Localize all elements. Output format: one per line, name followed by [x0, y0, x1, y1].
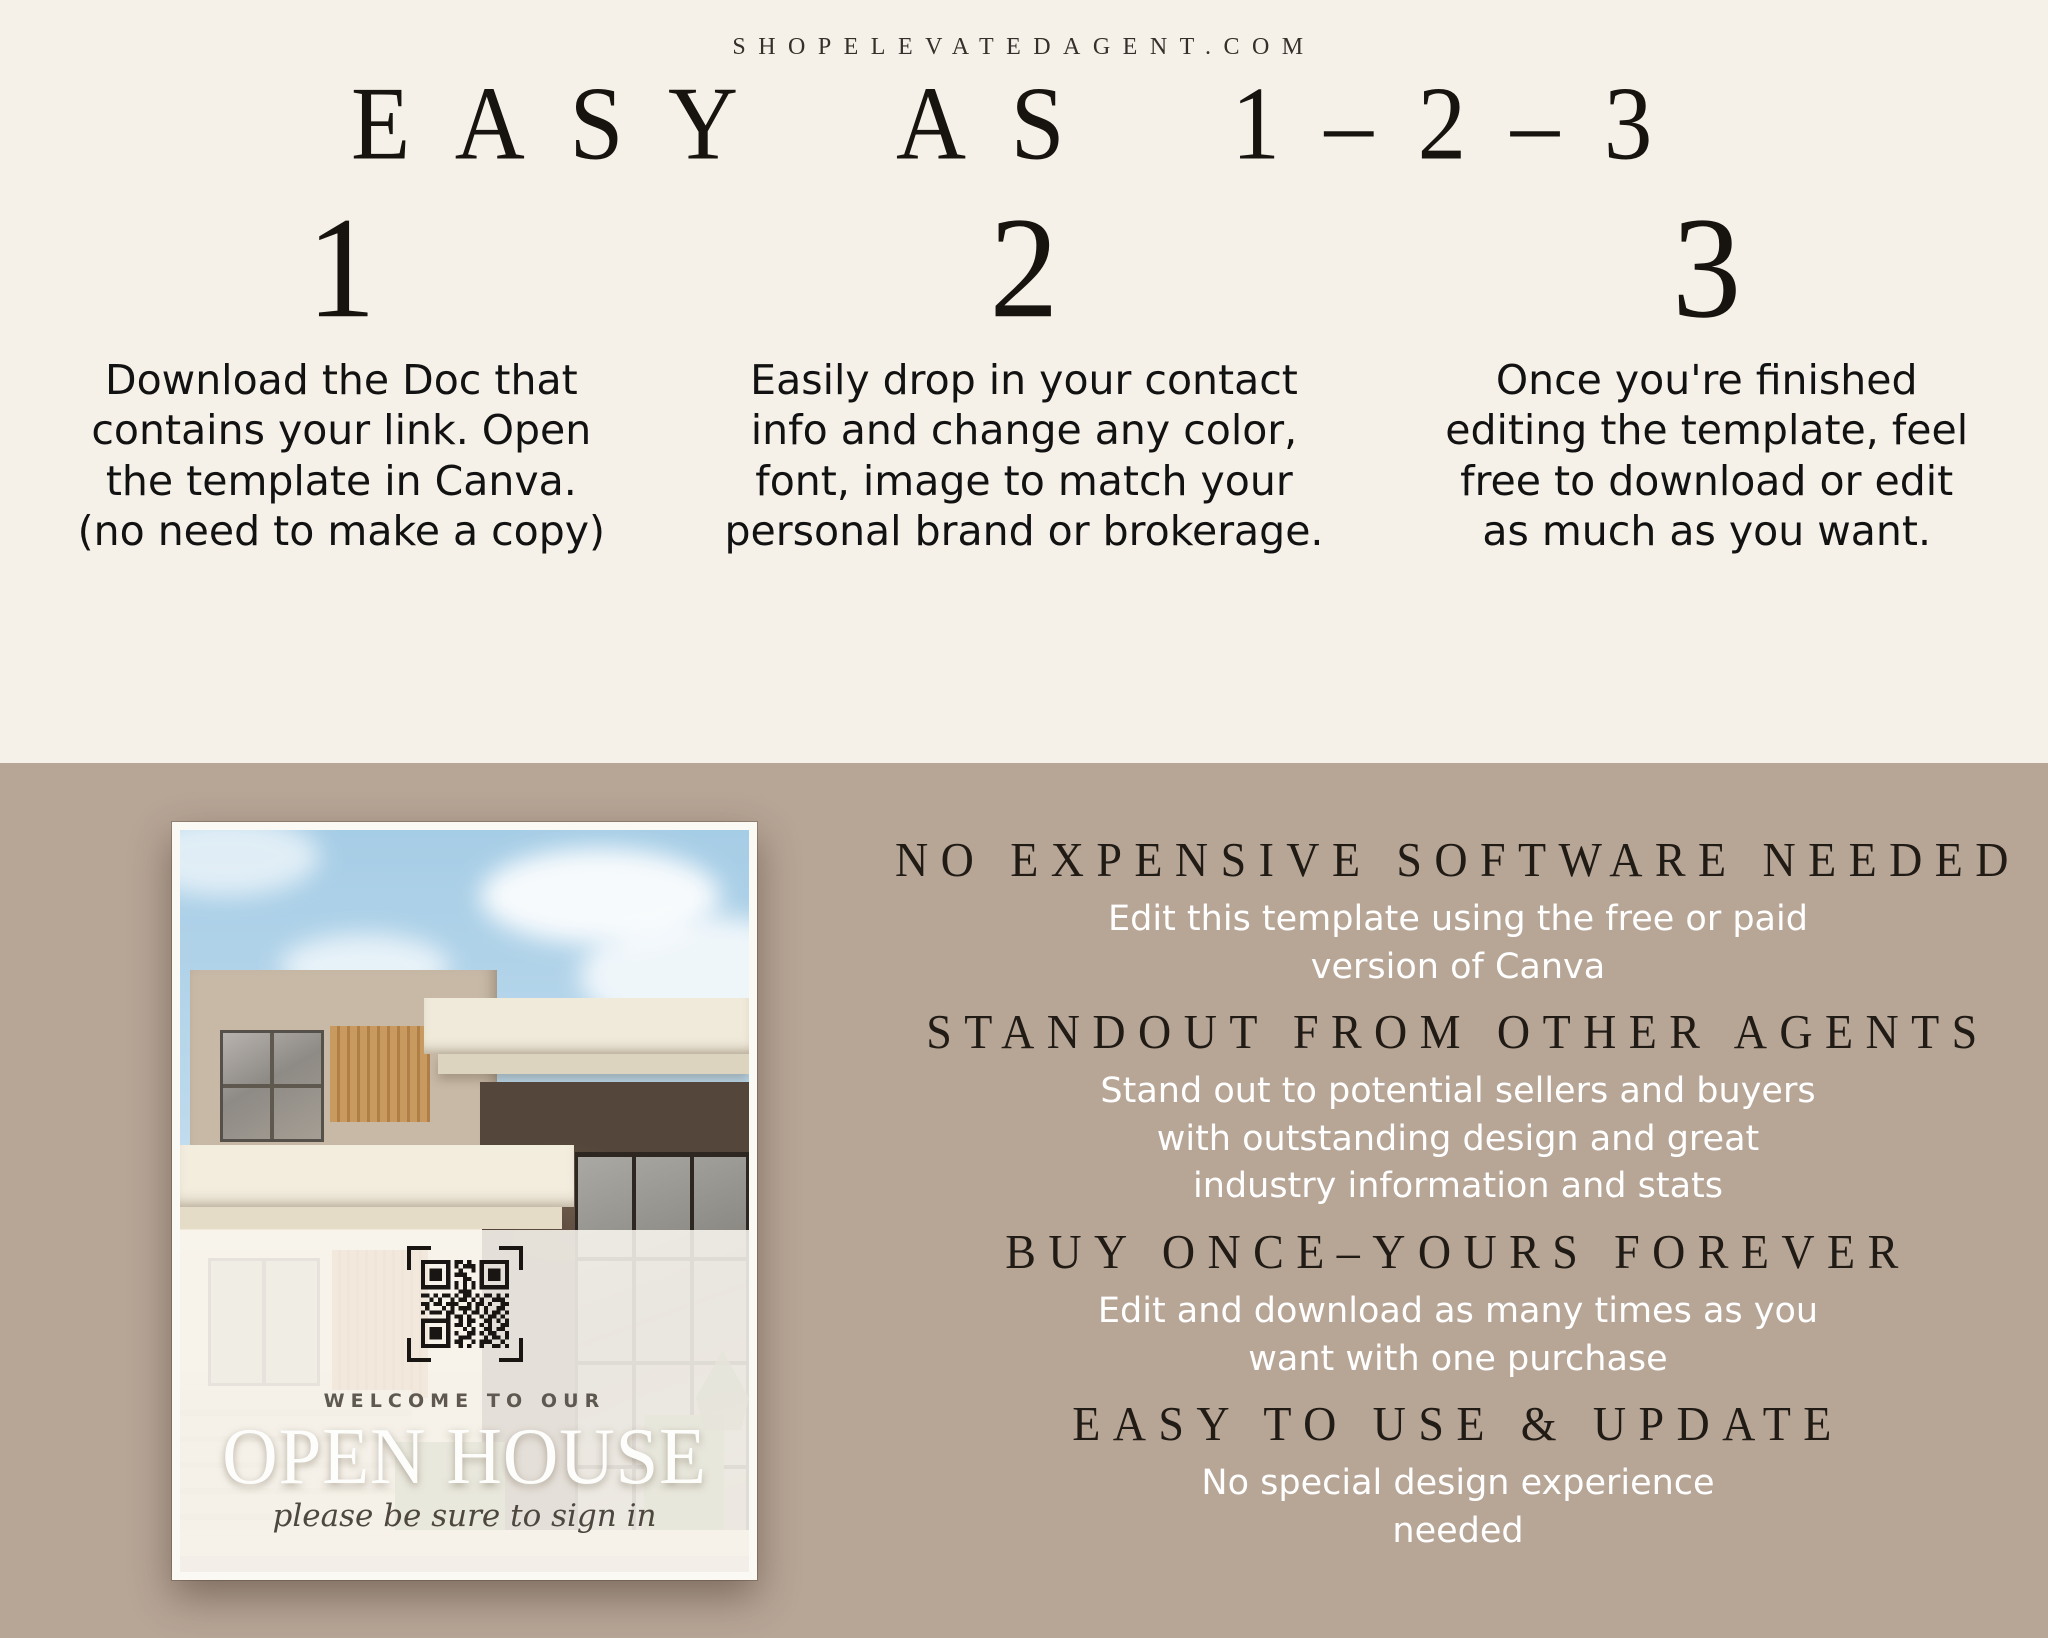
benefit-heading: NO EXPENSIVE SOFTWARE NEEDED [878, 831, 2038, 887]
benefit-body: Stand out to potential sellers and buyer… [878, 1068, 2038, 1211]
flyer-text-overlay: WELCOME TO OUR OPEN HOUSE please be sure… [180, 1230, 749, 1572]
flyer-signin-tagline: please be sure to sign in [180, 1498, 749, 1534]
roof-fascia-shape [424, 998, 749, 1054]
step-1-text: Download the Doc that contains your link… [36, 355, 646, 557]
benefit-item: BUY ONCE–YOURS FOREVER Edit and download… [878, 1225, 2038, 1383]
step-3: 3 Once you're finished editing the templ… [1365, 196, 2048, 557]
site-url: SHOPELEVATEDAGENT.COM [0, 34, 2048, 61]
step-1: 1 Download the Doc that contains your li… [0, 196, 683, 557]
flyer-open-house-title: OPEN HOUSE [180, 1410, 749, 1503]
upper-window-shape [220, 1030, 324, 1142]
house-photo-illustration: WELCOME TO OUR OPEN HOUSE please be sure… [180, 830, 749, 1572]
cloud-shape [180, 830, 320, 896]
benefits-section: WELCOME TO OUR OPEN HOUSE please be sure… [0, 763, 2048, 1638]
benefit-heading: BUY ONCE–YOURS FOREVER [878, 1223, 2038, 1279]
open-house-flyer-preview: WELCOME TO OUR OPEN HOUSE please be sure… [172, 822, 757, 1580]
flyer-welcome-label: WELCOME TO OUR [180, 1390, 749, 1412]
step-2-number: 2 [683, 192, 1366, 344]
step-3-text: Once you're finished editing the templat… [1402, 355, 2012, 557]
benefits-list: NO EXPENSIVE SOFTWARE NEEDED Edit this t… [878, 833, 2038, 1569]
wood-panel-shape [330, 1026, 430, 1122]
step-1-number: 1 [0, 192, 683, 344]
easy-as-123-section: SHOPELEVATEDAGENT.COM EASY AS 1–2–3 1 Do… [0, 0, 2048, 763]
qr-code-icon [407, 1246, 523, 1362]
benefit-body: No special design experience needed [878, 1460, 2038, 1555]
page-title: EASY AS 1–2–3 [0, 64, 2048, 184]
benefit-item: NO EXPENSIVE SOFTWARE NEEDED Edit this t… [878, 833, 2038, 991]
benefit-body: Edit this template using the free or pai… [878, 896, 2038, 991]
promo-graphic: SHOPELEVATEDAGENT.COM EASY AS 1–2–3 1 Do… [0, 0, 2048, 1638]
benefit-item: EASY TO USE & UPDATE No special design e… [878, 1397, 2038, 1555]
step-3-number: 3 [1365, 192, 2048, 344]
step-2-text: Easily drop in your contact info and cha… [719, 355, 1329, 557]
balcony-shape [180, 1145, 574, 1207]
benefit-body: Edit and download as many times as you w… [878, 1288, 2038, 1383]
step-2: 2 Easily drop in your contact info and c… [683, 196, 1366, 557]
benefit-heading: EASY TO USE & UPDATE [878, 1396, 2038, 1452]
steps-row: 1 Download the Doc that contains your li… [0, 196, 2048, 557]
roof-fascia-edge-shape [438, 1054, 749, 1074]
qr-modules-icon [421, 1260, 509, 1348]
benefit-item: STANDOUT FROM OTHER AGENTS Stand out to … [878, 1005, 2038, 1211]
benefit-heading: STANDOUT FROM OTHER AGENTS [878, 1004, 2038, 1060]
balcony-edge-shape [180, 1207, 562, 1229]
